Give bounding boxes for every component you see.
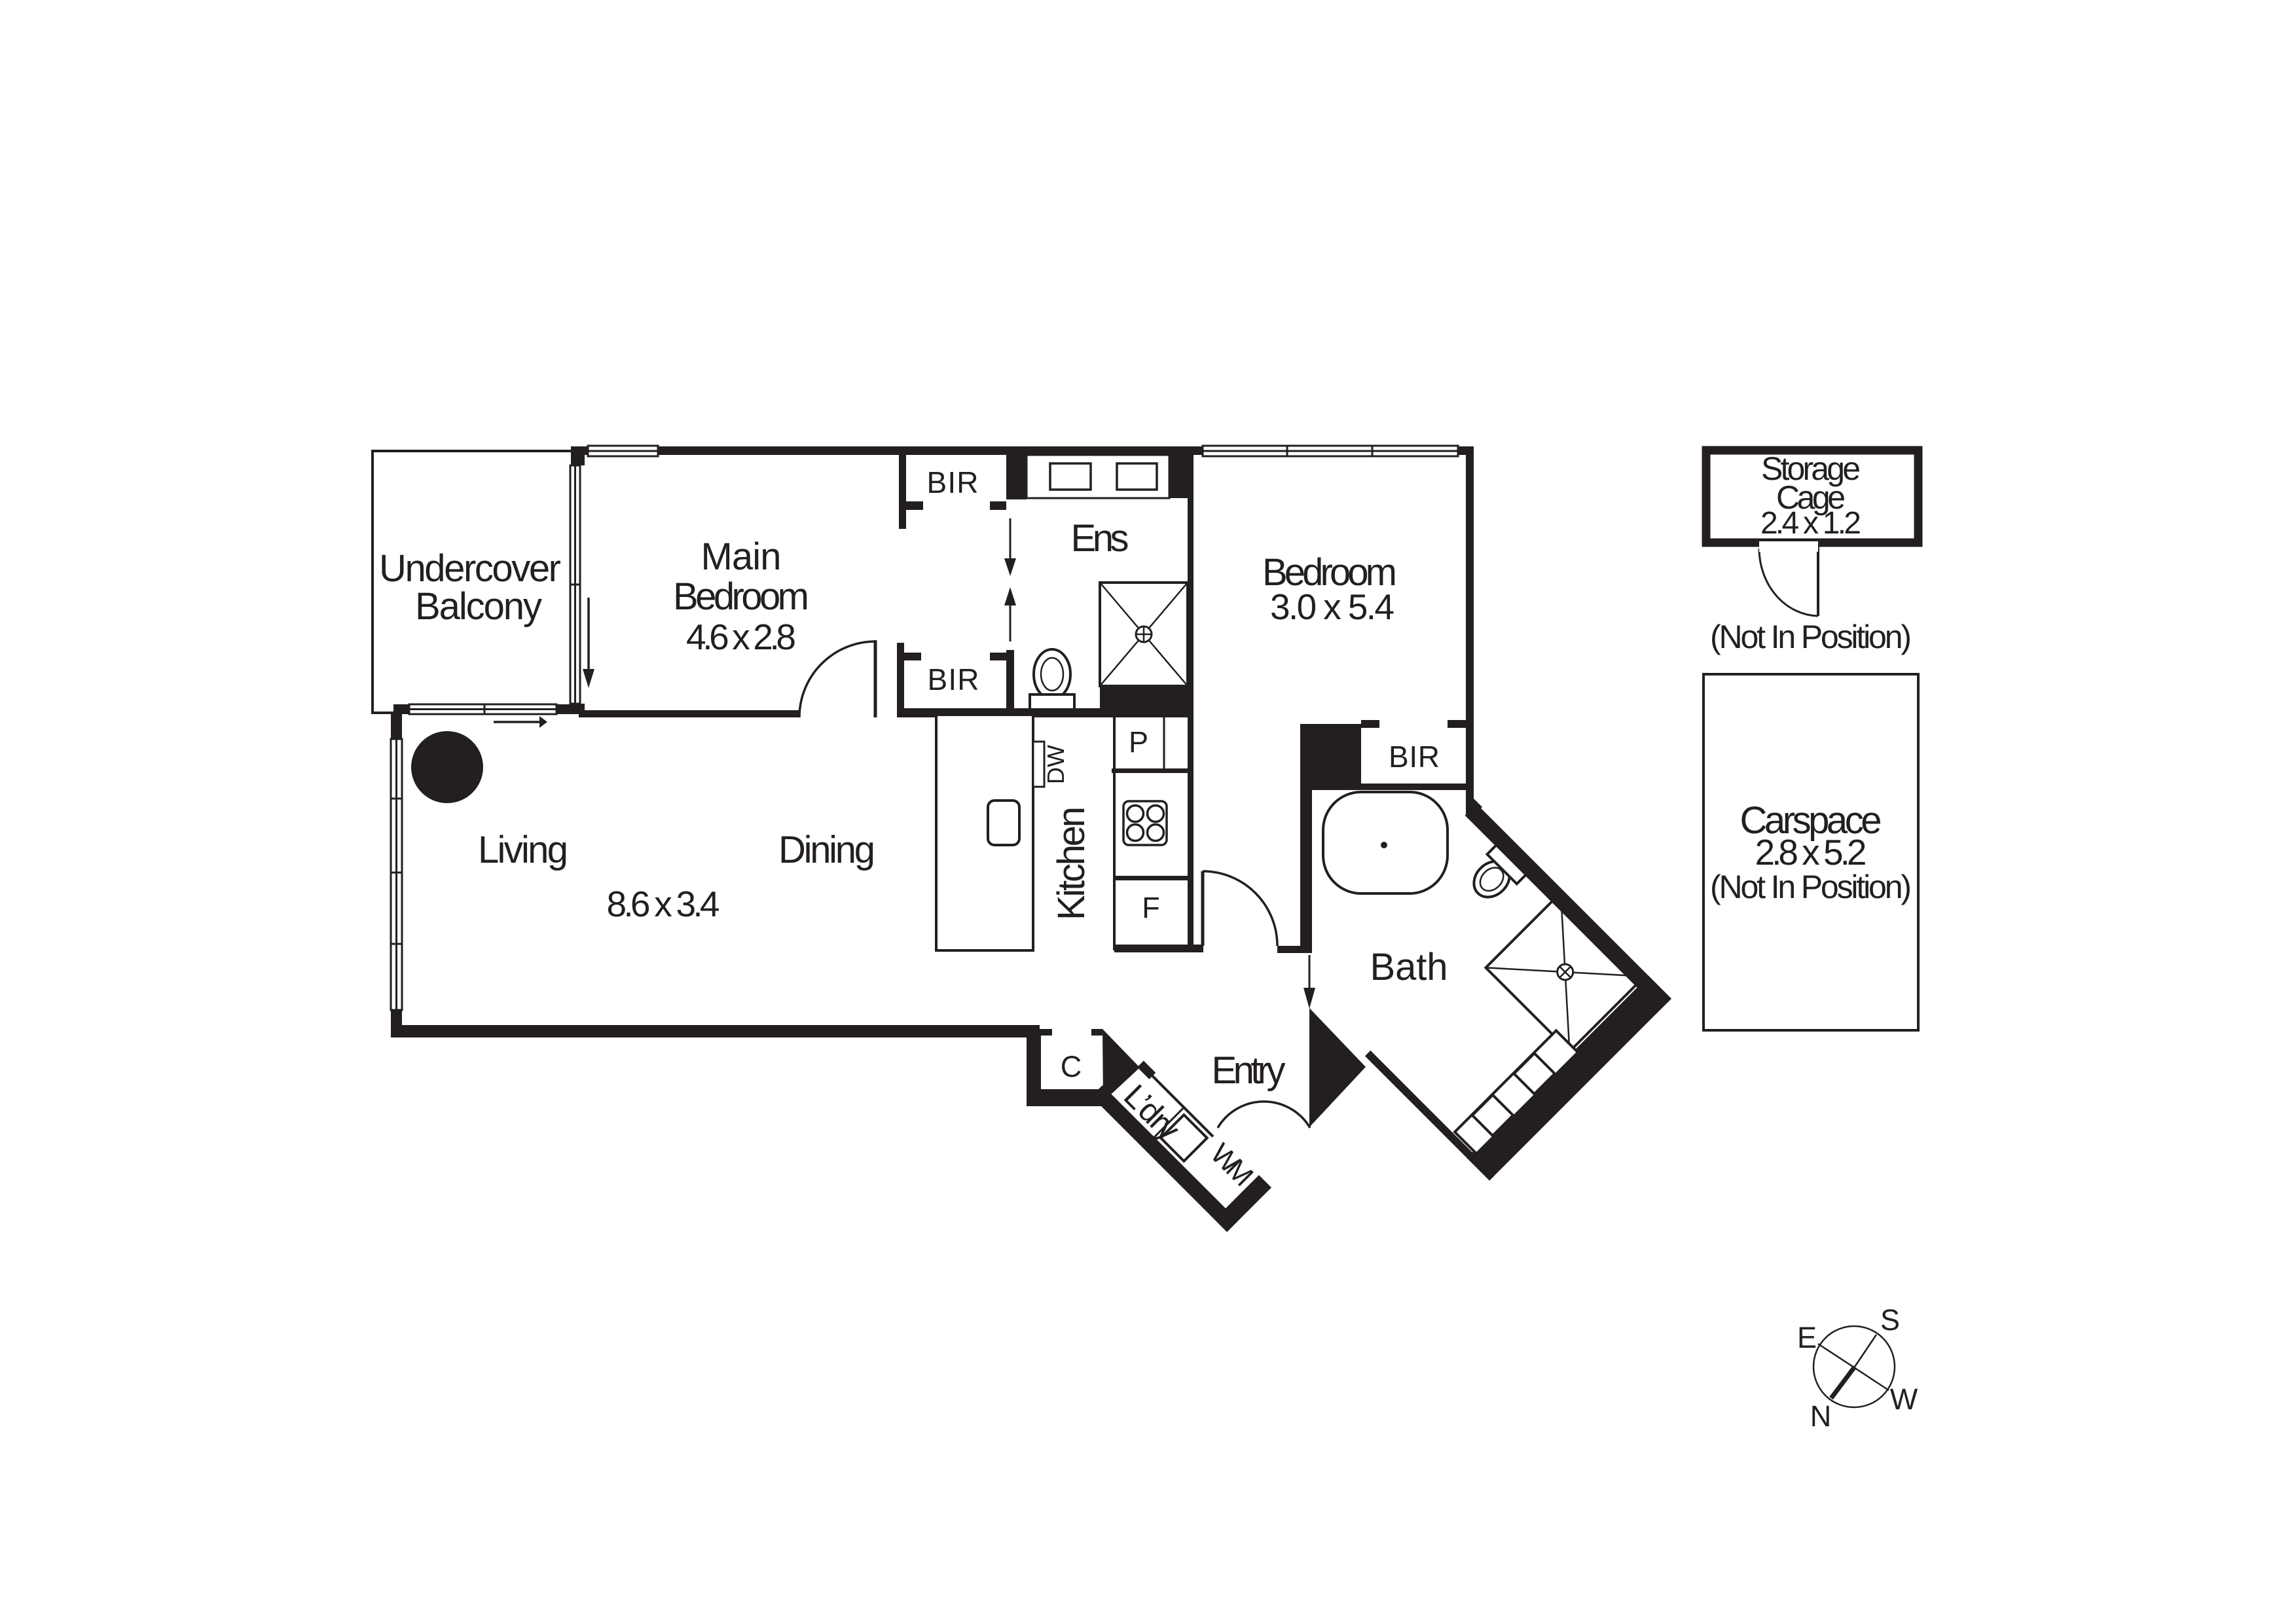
svg-text:N: N <box>1810 1399 1832 1433</box>
svg-text:E: E <box>1797 1321 1817 1354</box>
svg-text:BIR: BIR <box>1389 740 1440 774</box>
svg-text:Undercover: Undercover <box>379 547 561 590</box>
svg-text:BIR: BIR <box>927 465 979 499</box>
svg-text:Kitchen: Kitchen <box>1050 806 1093 920</box>
svg-text:Entry: Entry <box>1212 1049 1286 1092</box>
svg-text:2.8 x 5.2: 2.8 x 5.2 <box>1755 832 1867 873</box>
svg-text:Bath: Bath <box>1370 946 1448 988</box>
svg-text:Living: Living <box>478 829 568 871</box>
svg-text:Balcony: Balcony <box>415 585 542 628</box>
svg-text:Ens: Ens <box>1071 517 1129 560</box>
svg-text:S: S <box>1880 1303 1900 1337</box>
svg-text:P: P <box>1129 725 1148 759</box>
svg-text:BIR: BIR <box>928 662 979 696</box>
svg-text:Dining: Dining <box>778 829 875 871</box>
svg-text:8.6 x 3.4: 8.6 x 3.4 <box>607 884 720 924</box>
svg-text:C: C <box>1061 1050 1082 1083</box>
svg-text:3.0 x 5.4: 3.0 x 5.4 <box>1270 586 1394 627</box>
svg-text:2.4 x 1.2: 2.4 x 1.2 <box>1760 506 1861 541</box>
svg-text:Main: Main <box>701 535 782 578</box>
svg-text:W: W <box>1890 1382 1918 1416</box>
svg-text:DW: DW <box>1042 745 1069 784</box>
svg-text:Bedroom: Bedroom <box>673 575 809 618</box>
svg-text:4.6 x 2.8: 4.6 x 2.8 <box>686 617 796 657</box>
svg-text:(Not In Position): (Not In Position) <box>1710 869 1912 905</box>
svg-text:F: F <box>1142 891 1160 924</box>
svg-text:(Not In Position): (Not In Position) <box>1710 619 1912 655</box>
